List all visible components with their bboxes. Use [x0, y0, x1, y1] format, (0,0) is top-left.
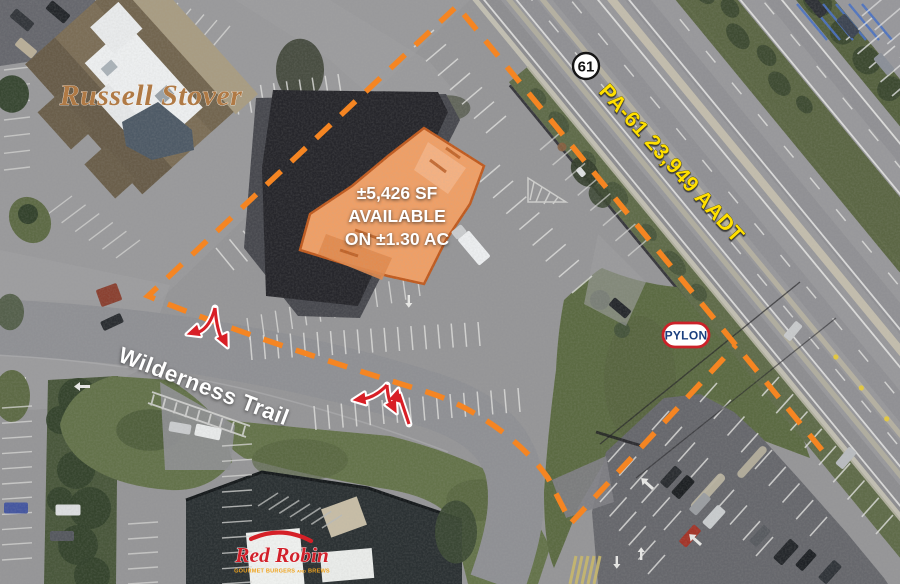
svg-text:61: 61 — [578, 59, 595, 76]
svg-text:GOURMET BURGERS AND BREWS: GOURMET BURGERS AND BREWS — [234, 569, 330, 575]
svg-text:Red Robin: Red Robin — [234, 543, 329, 567]
svg-text:PYLON: PYLON — [665, 329, 708, 343]
svg-text:AVAILABLE: AVAILABLE — [348, 206, 446, 226]
svg-text:±5,426 SF: ±5,426 SF — [357, 183, 438, 203]
svg-text:Russell Stover: Russell Stover — [59, 79, 243, 112]
svg-text:ON ±1.30 AC: ON ±1.30 AC — [345, 229, 450, 249]
